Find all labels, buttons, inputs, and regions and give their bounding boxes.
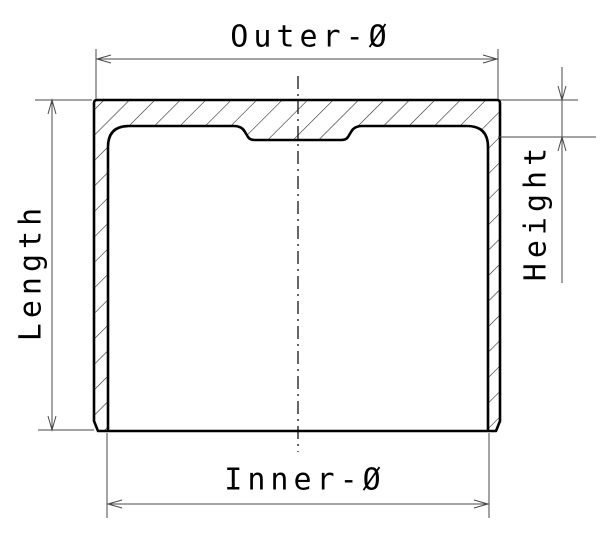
tappet-cross-section-drawing: Outer-Ø Length Height Inner-Ø: [0, 0, 600, 553]
outer-diameter-label: Outer-Ø: [230, 20, 391, 55]
technical-drawing-canvas: Outer-Ø Length Height Inner-Ø: [0, 0, 600, 553]
length-label: Length: [14, 203, 49, 341]
height-label: Height: [519, 143, 554, 281]
inner-diameter-label: Inner-Ø: [224, 463, 385, 498]
